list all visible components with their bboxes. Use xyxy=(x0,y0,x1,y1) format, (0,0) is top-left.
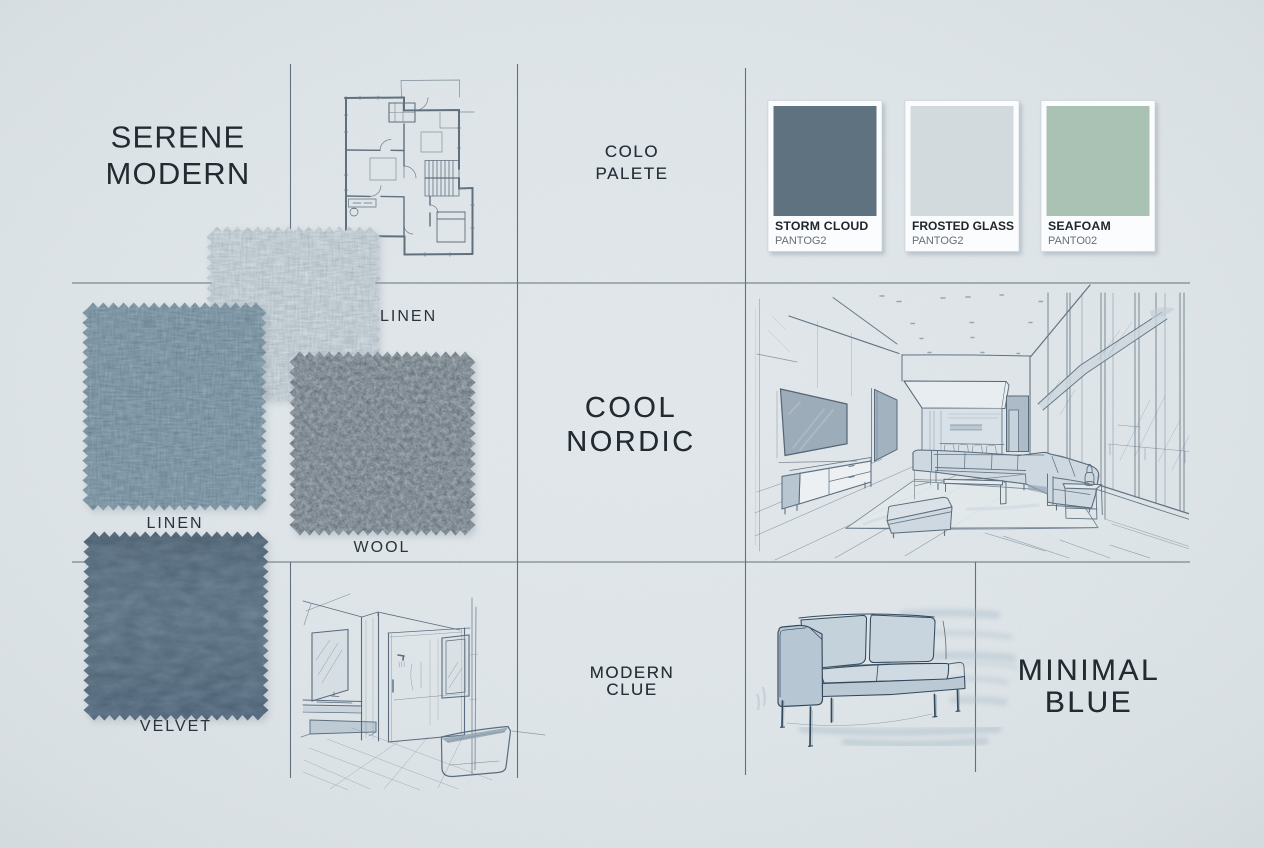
svg-text:SEAFOAM: SEAFOAM xyxy=(1048,219,1111,233)
svg-text:SERENE: SERENE xyxy=(111,120,246,155)
svg-text:MODERN: MODERN xyxy=(106,156,251,191)
svg-text:PANTOG2: PANTOG2 xyxy=(912,235,964,247)
svg-text:PALETE: PALETE xyxy=(596,164,669,183)
svg-text:COLO: COLO xyxy=(605,142,659,161)
svg-text:BLUE: BLUE xyxy=(1045,686,1133,719)
svg-text:VELVET: VELVET xyxy=(140,718,212,735)
svg-text:WOOL: WOOL xyxy=(354,539,411,556)
svg-text:FROSTED GLASS: FROSTED GLASS xyxy=(912,219,1014,233)
svg-text:MINIMAL: MINIMAL xyxy=(1018,654,1161,687)
svg-text:LINEN: LINEN xyxy=(146,515,203,532)
svg-text:PANTOG2: PANTOG2 xyxy=(775,235,827,247)
svg-text:CLUE: CLUE xyxy=(606,680,657,699)
svg-text:LINEN: LINEN xyxy=(380,308,437,325)
svg-text:NORDIC: NORDIC xyxy=(566,426,695,458)
svg-text:PANTO02: PANTO02 xyxy=(1048,235,1097,247)
svg-text:STORM CLOUD: STORM CLOUD xyxy=(775,219,869,233)
svg-text:COOL: COOL xyxy=(585,392,677,424)
